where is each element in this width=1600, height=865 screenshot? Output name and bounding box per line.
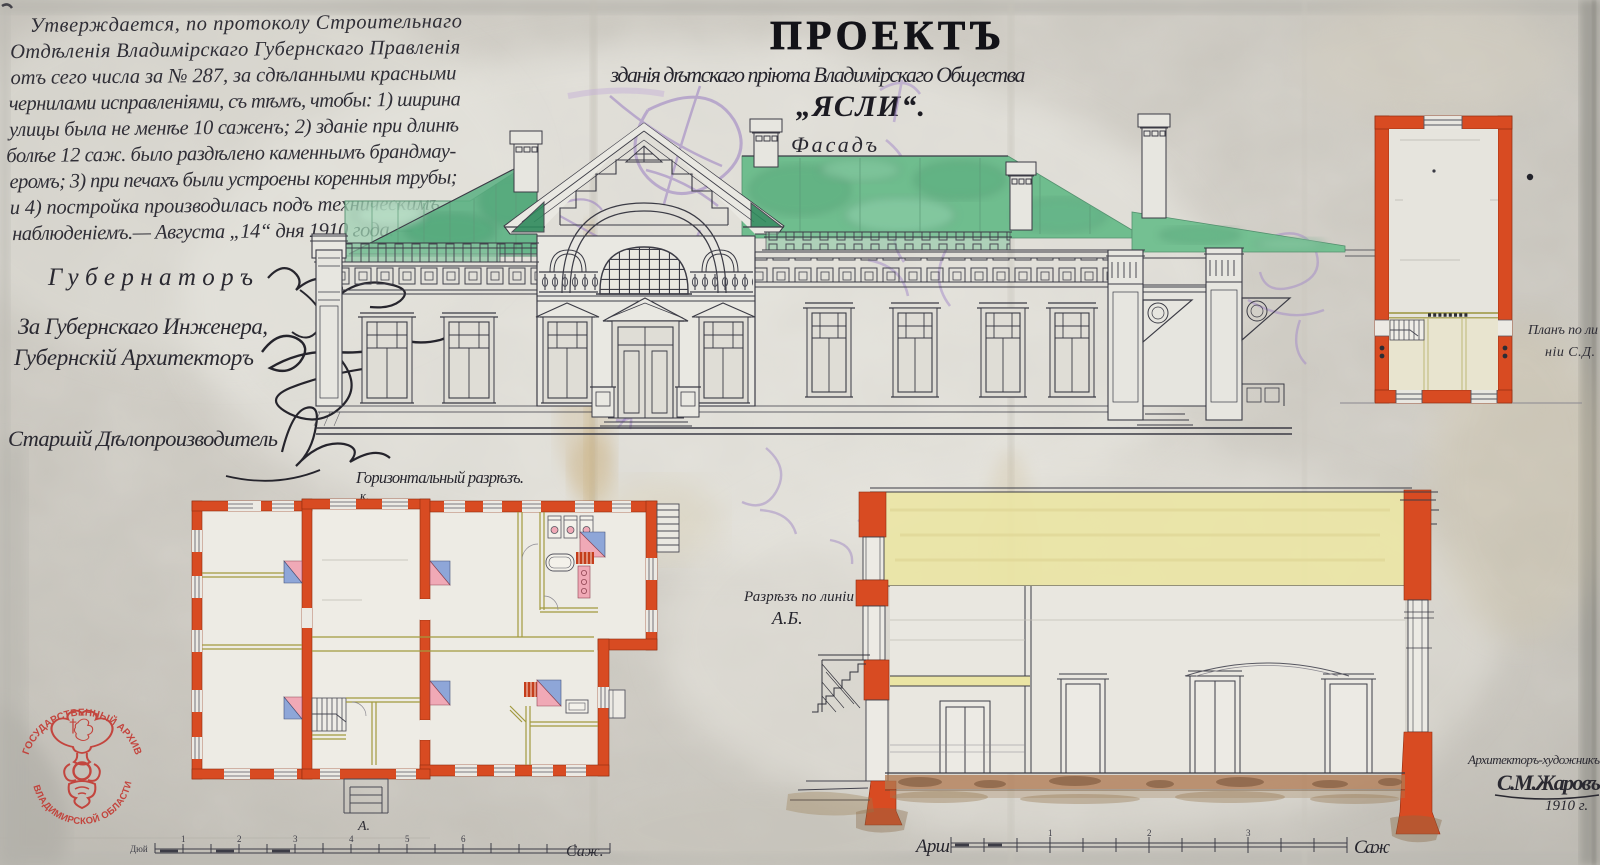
svg-text:болѣе 12 саж. было раздѣлено к: болѣе 12 саж. было раздѣлено каменнымъ б…	[6, 140, 456, 167]
svg-text:3: 3	[293, 834, 298, 844]
svg-text:„ЯСЛИ“.: „ЯСЛИ“.	[796, 90, 928, 123]
svg-text:С.М.Жаровъ: С.М.Жаровъ	[1497, 770, 1600, 795]
svg-text:Планъ по ли: Планъ по ли	[1527, 323, 1598, 338]
svg-text:Губернаторъ: Губернаторъ	[47, 264, 253, 291]
svg-text:3: 3	[1246, 828, 1251, 838]
svg-text:1: 1	[181, 834, 186, 844]
svg-text:Старшій Дѣлопроизводитель: Старшій Дѣлопроизводитель	[8, 426, 278, 451]
svg-text:Утверждается, по протоколу Стр: Утверждается, по протоколу Строительнаго	[30, 10, 462, 37]
svg-text:Саж: Саж	[1354, 837, 1390, 858]
svg-text:Губернскій Архитекторъ: Губернскій Архитекторъ	[13, 345, 254, 370]
svg-text:Горизонтальный разрѣзъ.: Горизонтальный разрѣзъ.	[355, 468, 524, 487]
svg-text:Архитекторъ-художникъ: Архитекторъ-художникъ	[1467, 752, 1600, 767]
svg-text:2: 2	[1147, 828, 1152, 838]
svg-text:А.: А.	[357, 819, 370, 834]
svg-text:зданія дѣтскаго пріюта Владимі: зданія дѣтскаго пріюта Владимірскаго Общ…	[610, 62, 1026, 87]
svg-text:Арш: Арш	[914, 836, 950, 857]
svg-text:Саж.: Саж.	[566, 843, 604, 860]
svg-text:Разрѣзъ по линіи: Разрѣзъ по линіи	[743, 589, 854, 605]
svg-text:5: 5	[405, 834, 410, 844]
svg-text:4: 4	[349, 834, 354, 844]
svg-text:6: 6	[461, 834, 466, 844]
svg-text:отъ сего числа за № 287, за сд: отъ сего числа за № 287, за сдѣланными к…	[10, 62, 456, 89]
svg-text:ПРОЕКТЪ: ПРОЕКТЪ	[770, 12, 1008, 58]
svg-text:А.Б.: А.Б.	[771, 608, 803, 628]
svg-text:еромъ; 3) при печахъ были устр: еромъ; 3) при печахъ были устроены корен…	[9, 166, 457, 193]
svg-text:За Губернскаго Инженера,: За Губернскаго Инженера,	[18, 314, 268, 339]
svg-text:ніи С.Д.: ніи С.Д.	[1545, 345, 1595, 360]
svg-text:Дюй: Дюй	[130, 844, 148, 854]
svg-text:1910 г.: 1910 г.	[1545, 798, 1588, 814]
svg-text:1: 1	[1048, 828, 1053, 838]
svg-text:Отдѣленія Владимірскаго Губерн: Отдѣленія Владимірскаго Губернскаго Прав…	[10, 36, 460, 63]
svg-text:2: 2	[237, 834, 242, 844]
